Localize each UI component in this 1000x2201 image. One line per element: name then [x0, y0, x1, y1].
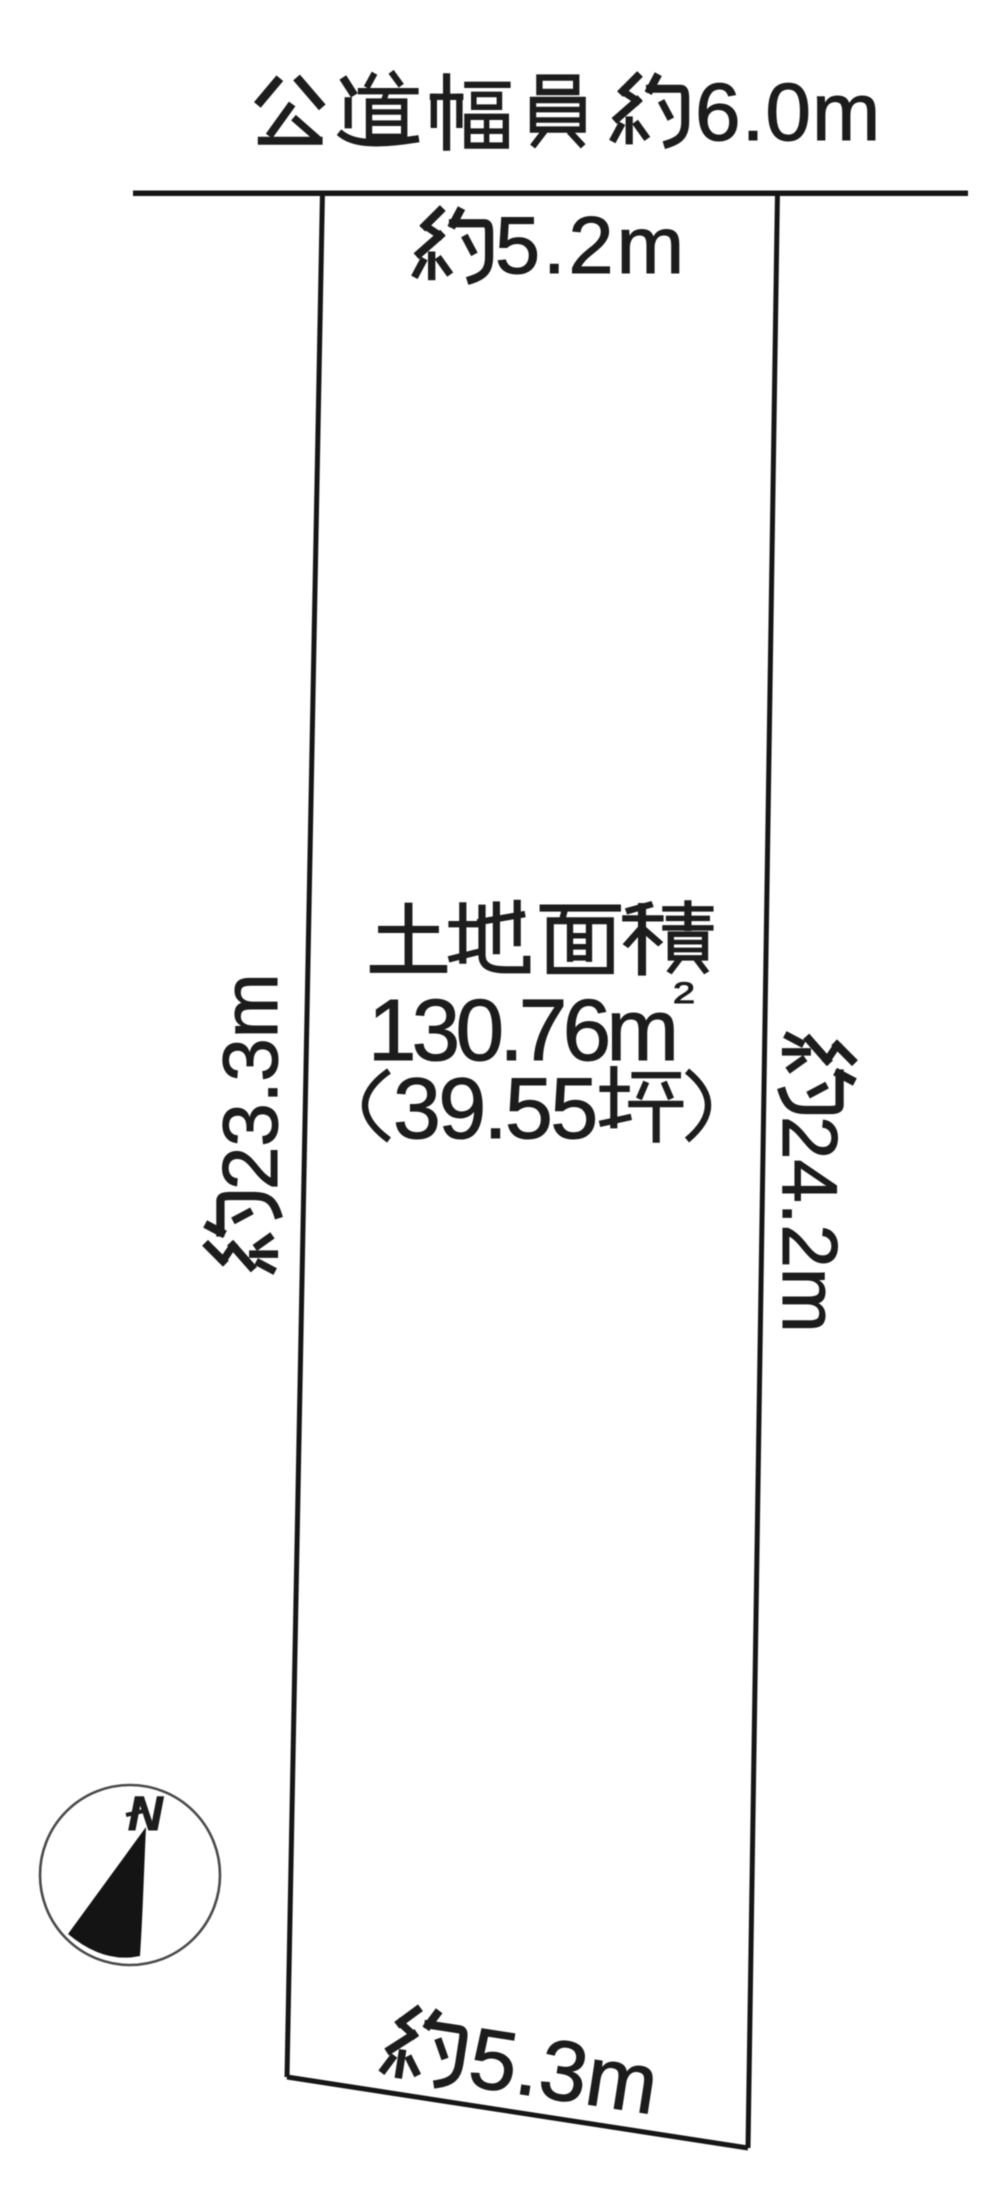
svg-text:24.2m: 24.2m [766, 1116, 854, 1333]
svg-text:5.3m: 5.3m [463, 2010, 664, 2133]
svg-text:23.3m: 23.3m [206, 973, 294, 1190]
svg-text:5.2m: 5.2m [495, 201, 687, 291]
svg-text:6.0m: 6.0m [695, 67, 881, 158]
svg-text:39.55: 39.55 [393, 1061, 596, 1157]
svg-text:2: 2 [673, 977, 695, 1010]
